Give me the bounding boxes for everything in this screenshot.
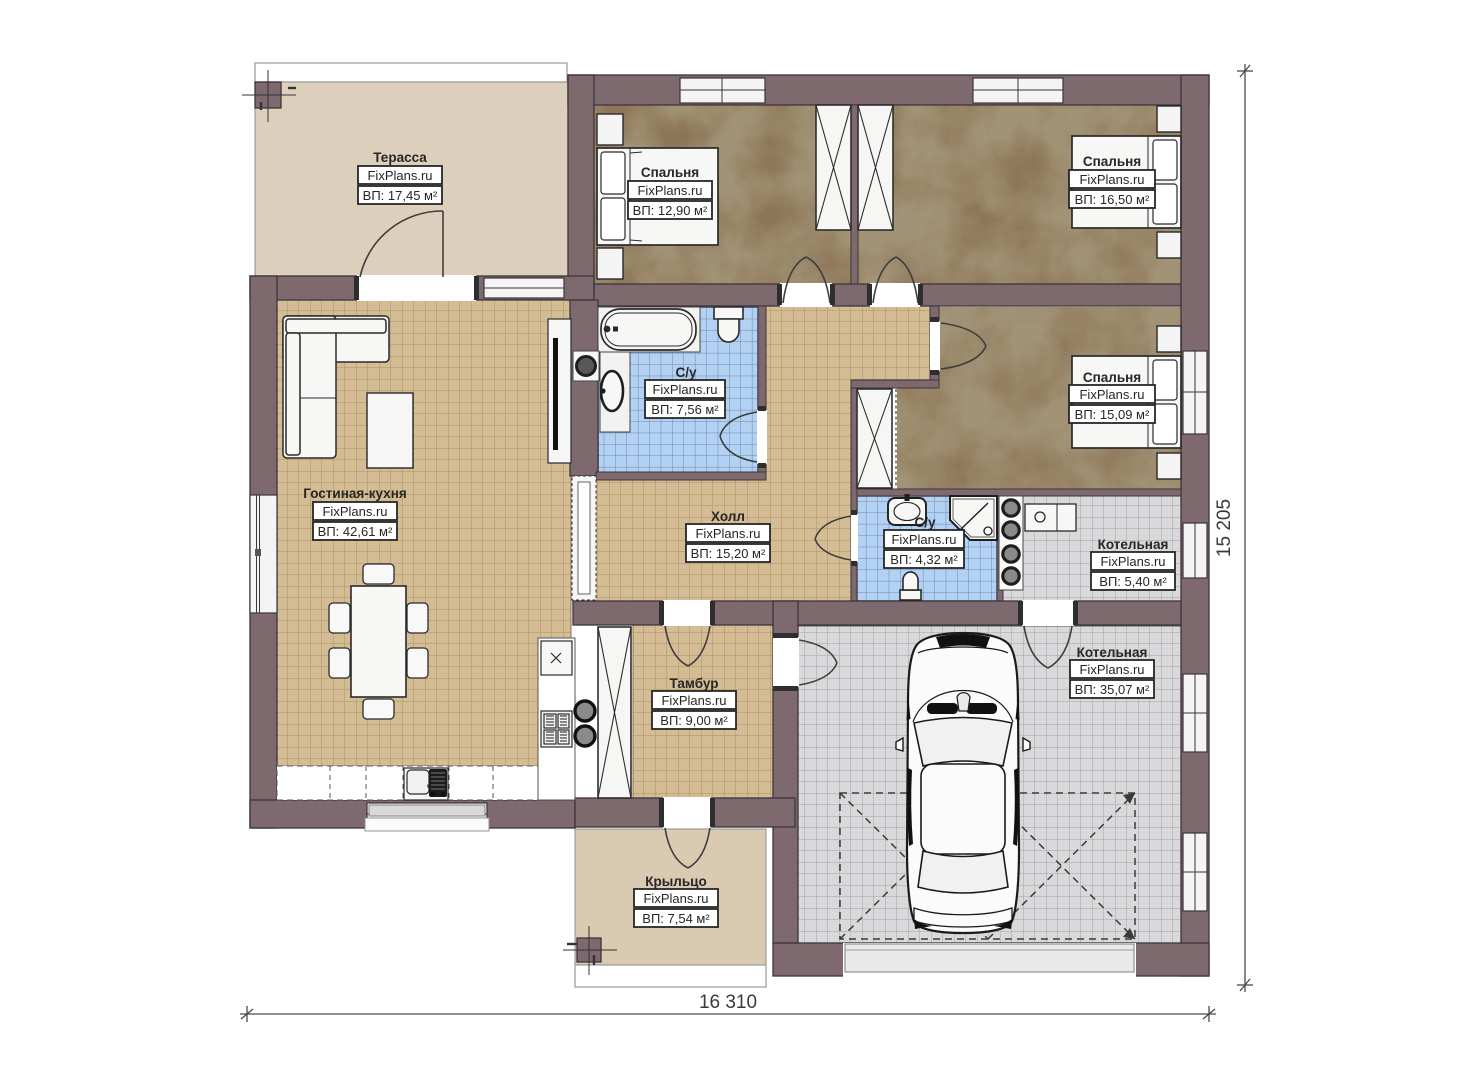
svg-text:ВП: 12,90 м²: ВП: 12,90 м² — [633, 203, 708, 218]
svg-text:FixPlans.ru: FixPlans.ru — [1079, 387, 1144, 402]
svg-text:ВП: 7,54 м²: ВП: 7,54 м² — [642, 911, 710, 926]
svg-text:Спальня: Спальня — [641, 165, 699, 180]
svg-text:Холл: Холл — [711, 509, 745, 524]
svg-text:С/у: С/у — [675, 365, 697, 380]
svg-text:Гостиная-кухня: Гостиная-кухня — [303, 486, 406, 501]
svg-text:ВП: 7,56 м²: ВП: 7,56 м² — [651, 402, 719, 417]
svg-text:Спальня: Спальня — [1083, 370, 1141, 385]
svg-text:FixPlans.ru: FixPlans.ru — [1079, 172, 1144, 187]
svg-text:ВП: 9,00 м²: ВП: 9,00 м² — [660, 713, 728, 728]
svg-text:ВП: 35,07 м²: ВП: 35,07 м² — [1075, 682, 1150, 697]
svg-text:FixPlans.ru: FixPlans.ru — [637, 183, 702, 198]
svg-text:FixPlans.ru: FixPlans.ru — [695, 526, 760, 541]
svg-text:Котельная: Котельная — [1077, 645, 1148, 660]
svg-text:15 205: 15 205 — [1214, 499, 1235, 557]
svg-text:ВП: 16,50 м²: ВП: 16,50 м² — [1075, 192, 1150, 207]
svg-text:ВП: 5,40 м²: ВП: 5,40 м² — [1099, 574, 1167, 589]
svg-text:Котельная: Котельная — [1098, 537, 1169, 552]
svg-text:16 310: 16 310 — [699, 992, 757, 1013]
svg-text:FixPlans.ru: FixPlans.ru — [322, 504, 387, 519]
svg-text:FixPlans.ru: FixPlans.ru — [643, 891, 708, 906]
svg-text:С/у: С/у — [914, 515, 936, 530]
svg-text:FixPlans.ru: FixPlans.ru — [661, 693, 726, 708]
svg-text:FixPlans.ru: FixPlans.ru — [1100, 554, 1165, 569]
svg-text:Терасса: Терасса — [373, 150, 427, 165]
svg-text:ВП: 42,61 м²: ВП: 42,61 м² — [318, 524, 393, 539]
svg-text:ВП: 15,09 м²: ВП: 15,09 м² — [1075, 407, 1150, 422]
svg-text:FixPlans.ru: FixPlans.ru — [652, 382, 717, 397]
svg-text:Крыльцо: Крыльцо — [645, 874, 706, 889]
svg-text:ВП: 15,20 м²: ВП: 15,20 м² — [691, 546, 766, 561]
svg-text:Спальня: Спальня — [1083, 154, 1141, 169]
svg-text:FixPlans.ru: FixPlans.ru — [1079, 662, 1144, 677]
svg-text:FixPlans.ru: FixPlans.ru — [891, 532, 956, 547]
svg-text:ВП: 17,45 м²: ВП: 17,45 м² — [363, 188, 438, 203]
svg-text:FixPlans.ru: FixPlans.ru — [367, 168, 432, 183]
svg-text:ВП: 4,32 м²: ВП: 4,32 м² — [890, 552, 958, 567]
svg-text:Тамбур: Тамбур — [670, 676, 719, 691]
